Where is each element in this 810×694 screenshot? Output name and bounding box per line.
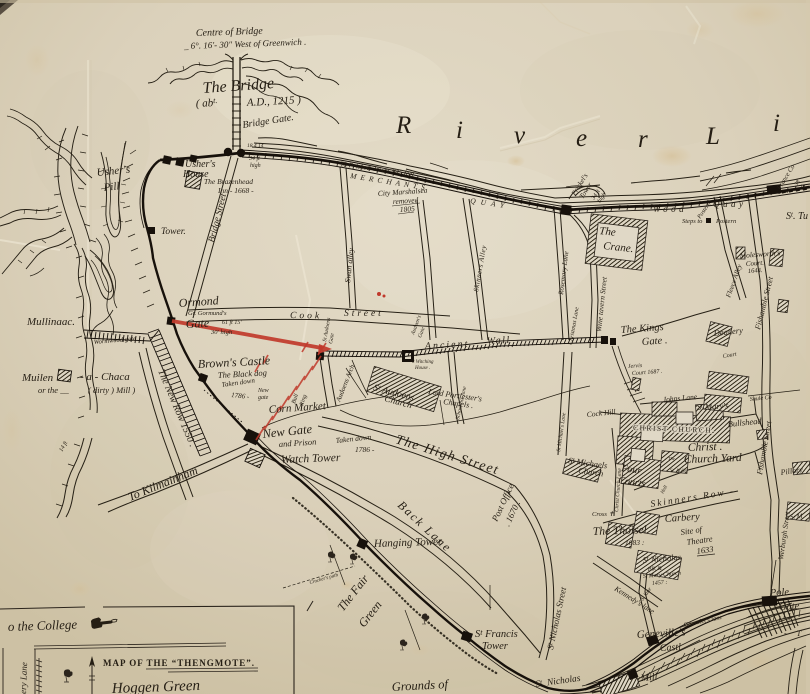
svg-text:Mullina​ac.: Mullina​ac. xyxy=(26,316,75,328)
svg-text:Centre of Bridge: Centre of Bridge xyxy=(196,26,264,39)
svg-text:Tower.: Tower. xyxy=(161,227,186,237)
svg-text:high: high xyxy=(250,163,261,169)
svg-text:or the __: or the __ xyxy=(38,385,69,395)
svg-text:St. Tu: St. Tu xyxy=(786,211,808,223)
svg-text:Pole: Pole xyxy=(769,587,790,599)
svg-text:New: New xyxy=(257,388,269,394)
svg-text:i: i xyxy=(773,110,780,137)
svg-text:30′ high: 30′ high xyxy=(210,329,232,336)
svg-text:Church Yard: Church Yard xyxy=(684,452,742,466)
svg-text:Castl: Castl xyxy=(660,642,682,654)
svg-text:Gate: Gate xyxy=(779,601,800,613)
svg-text:Muilen: Muilen xyxy=(21,372,54,384)
svg-text:o the College: o the College xyxy=(8,617,78,634)
svg-text:e: e xyxy=(576,125,587,152)
svg-text:MAP OF THE “THENGMOTE”.: MAP OF THE “THENGMOTE”. xyxy=(103,658,255,668)
svg-text:The: The xyxy=(599,225,617,239)
svg-text:Watch Tower: Watch Tower xyxy=(281,452,341,466)
svg-text:St. Aoile.: St. Aoile. xyxy=(670,468,688,474)
svg-text:Wood: Wood xyxy=(653,204,687,214)
svg-text:r: r xyxy=(638,126,648,153)
svg-text:gate: gate xyxy=(258,395,269,401)
svg-text:Hoggen Green: Hoggen Green xyxy=(111,678,201,694)
svg-text:18: 18 xyxy=(800,185,806,190)
svg-text:Mill: Mill xyxy=(639,672,658,685)
svg-text:Quay: Quay xyxy=(713,199,747,209)
svg-text:1644.: 1644. xyxy=(748,267,763,275)
svg-text:Cross ✝: Cross ✝ xyxy=(592,511,615,518)
svg-text:34 ft: 34 ft xyxy=(248,155,260,162)
svg-text:Gate: Gate xyxy=(185,316,210,331)
svg-text:St M: St M xyxy=(790,512,804,521)
svg-text:1786 -: 1786 - xyxy=(355,445,375,454)
svg-text:1805: 1805 xyxy=(400,204,416,214)
svg-text:ery Lane: ery Lane xyxy=(18,662,29,694)
svg-text:- T H: - T H xyxy=(784,629,810,638)
svg-text:Jervis: Jervis xyxy=(628,363,643,370)
svg-text:Wall: Wall xyxy=(487,335,512,347)
svg-text:Geneville's: Geneville's xyxy=(637,626,686,641)
svg-text:Gate .: Gate . xyxy=(641,335,667,348)
svg-text:Cook: Cook xyxy=(290,311,322,322)
svg-text:1683 :: 1683 : xyxy=(625,538,644,547)
svg-text:18 4 14: 18 4 14 xyxy=(247,142,264,149)
svg-text:L: L xyxy=(705,123,720,150)
svg-text:Street: Street xyxy=(344,309,384,319)
svg-text:Postern: Postern xyxy=(715,218,736,225)
svg-text:The Brazenhead: The Brazenhead xyxy=(204,177,253,186)
svg-text:i: i xyxy=(456,117,463,144)
svg-text:61 ft 15′: 61 ft 15′ xyxy=(222,319,242,326)
svg-text:Hanging Tower: Hanging Tower xyxy=(373,536,443,550)
svg-text:1457 :: 1457 : xyxy=(652,579,668,587)
svg-text:( abt.: ( abt. xyxy=(195,96,220,110)
svg-text:Pill: Pill xyxy=(102,180,120,194)
svg-text:( dirty ) Mill ): ( dirty ) Mill ) xyxy=(88,385,135,395)
svg-text:R: R xyxy=(395,112,411,139)
svg-text:House .: House . xyxy=(414,366,430,371)
svg-text:3 Witching: 3 Witching xyxy=(412,360,434,365)
svg-text:v: v xyxy=(514,122,526,149)
svg-text:- a - Chaca: - a - Chaca xyxy=(80,371,130,383)
svg-text:The: The xyxy=(668,456,675,461)
svg-text:Tower: Tower xyxy=(482,641,509,652)
svg-text:The Tholsel: The Tholsel xyxy=(593,524,647,538)
svg-text:Ormond: Ormond xyxy=(178,293,220,310)
